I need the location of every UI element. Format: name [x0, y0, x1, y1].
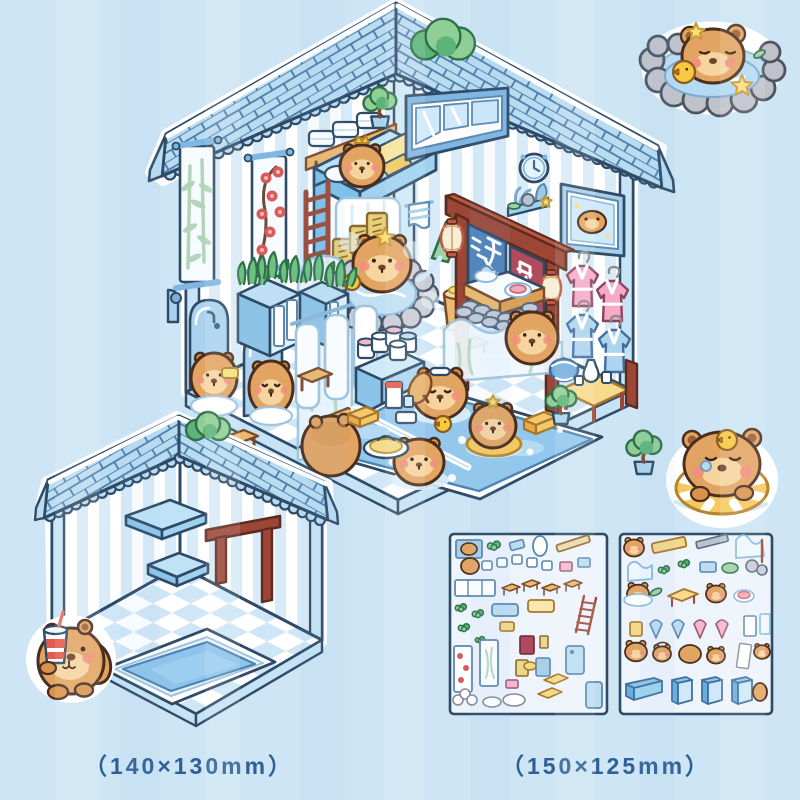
- svg-text:（150×125mm）: （150×125mm）: [501, 753, 711, 779]
- svg-text:（140×130mm）: （140×130mm）: [84, 753, 294, 779]
